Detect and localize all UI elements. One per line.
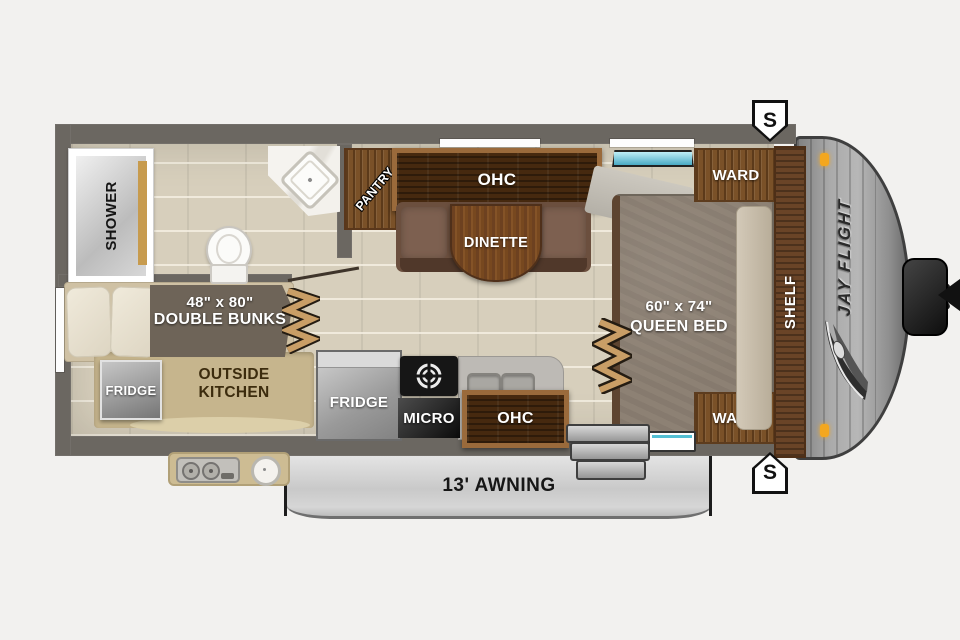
stove-burner-icon	[414, 361, 444, 391]
bed-steps-icon	[592, 318, 632, 394]
kitchen-fridge-label: FRIDGE	[330, 394, 388, 411]
bedroom-window-icon	[612, 150, 694, 167]
window-left-icon	[56, 288, 64, 372]
pantry-label: PANTRY	[352, 165, 396, 214]
dinette-table: DINETTE	[450, 204, 542, 282]
kitchen-fridge: FRIDGE	[316, 350, 402, 441]
dinette-label: DINETTE	[464, 235, 528, 251]
dinette-cushion-left	[401, 207, 447, 259]
window-top-1-icon	[440, 139, 540, 147]
bunk-pillow-1	[66, 286, 112, 357]
rv-floorplan: 13' AWNING JAY FLIGHT SHOWER	[0, 0, 960, 640]
wing-logo-icon	[821, 318, 869, 402]
outside-kitchen-label-1: OUTSIDE	[158, 366, 310, 384]
ohc-kitchen-cabinet: OHC	[462, 390, 569, 448]
awning-arm-right	[709, 454, 712, 516]
bunk-name-label: DOUBLE BUNKS	[142, 311, 298, 329]
clearance-light-top-icon	[820, 153, 829, 166]
ohc-dinette-label: OHC	[478, 170, 517, 190]
stabilizer-top-label: S	[763, 109, 777, 133]
entry-step-2	[570, 442, 650, 461]
ward-top-cabinet: WARD	[694, 148, 778, 202]
outdoor-stove-badge	[221, 473, 234, 479]
clearance-light-bottom-icon	[820, 424, 829, 437]
bed-name-label: QUEEN BED	[630, 318, 728, 336]
bunk-size-label: 48" x 80"	[142, 294, 298, 311]
toilet-tank	[210, 264, 248, 284]
entry-step-3	[576, 460, 646, 480]
bunk-ladder-icon	[282, 288, 320, 354]
outside-fridge: FRIDGE	[100, 360, 162, 420]
entry-door-icon	[648, 431, 696, 452]
stabilizer-bottom-label: S	[763, 461, 777, 485]
outdoor-stove-icon	[176, 457, 240, 483]
stabilizer-marker-bottom: S	[752, 452, 788, 494]
awning-label: 13' AWNING	[442, 475, 555, 497]
bunk-labels: 48" x 80" DOUBLE BUNKS	[142, 294, 298, 329]
awning-band: 13' AWNING	[286, 455, 712, 519]
shelf-panel: SHELF	[774, 146, 806, 458]
outdoor-burner-2	[202, 462, 220, 480]
entry-steps-icon	[566, 424, 650, 443]
outdoor-sink-icon	[251, 456, 281, 486]
window-top-2-icon	[610, 139, 694, 147]
shelf-label: SHELF	[782, 275, 799, 329]
outdoor-kitchen-tray	[168, 452, 290, 486]
stove-top	[400, 356, 458, 396]
microwave-label: MICRO	[403, 410, 455, 427]
hitch-stem	[955, 288, 960, 302]
shower-stall: SHOWER	[68, 148, 154, 284]
ohc-kitchen-label: OHC	[497, 410, 533, 428]
outside-kitchen-labels: OUTSIDE KITCHEN	[158, 366, 310, 402]
outside-kitchen-label-2: KITCHEN	[158, 384, 310, 402]
outside-fridge-label: FRIDGE	[106, 383, 157, 398]
microwave: MICRO	[398, 398, 460, 438]
ward-top-label: WARD	[712, 167, 759, 184]
outdoor-burner-1	[182, 462, 200, 480]
bed-pillow-strip	[736, 206, 772, 430]
shower-label: SHOWER	[103, 181, 120, 250]
dinette-cushion-right	[540, 207, 586, 259]
